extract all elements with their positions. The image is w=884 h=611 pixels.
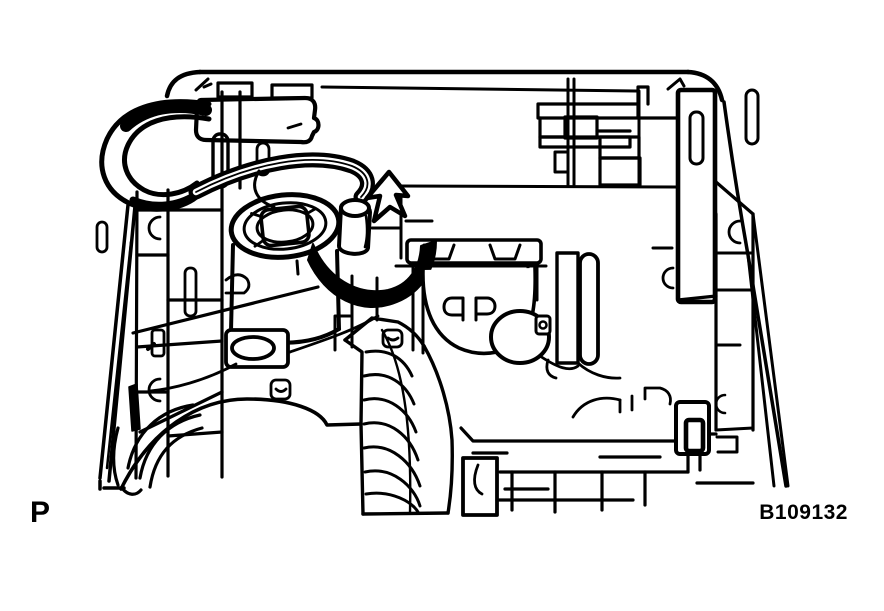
figure-canvas: P B109132 xyxy=(0,0,884,611)
vertical-capsule-bar xyxy=(557,253,620,378)
clip-icon-left xyxy=(271,380,290,399)
left-bracket-column xyxy=(97,92,318,478)
bulb-plug-cylinder xyxy=(339,200,370,254)
top-right-bracket xyxy=(538,87,677,185)
diagram-svg xyxy=(0,0,884,611)
wire-harness xyxy=(102,102,368,210)
retainer-clip-right xyxy=(676,402,709,454)
lens-dome-arcs xyxy=(114,384,362,494)
oval-hole-box xyxy=(150,316,378,391)
figure-code-label: B109132 xyxy=(759,501,848,525)
view-label: P xyxy=(30,496,51,530)
